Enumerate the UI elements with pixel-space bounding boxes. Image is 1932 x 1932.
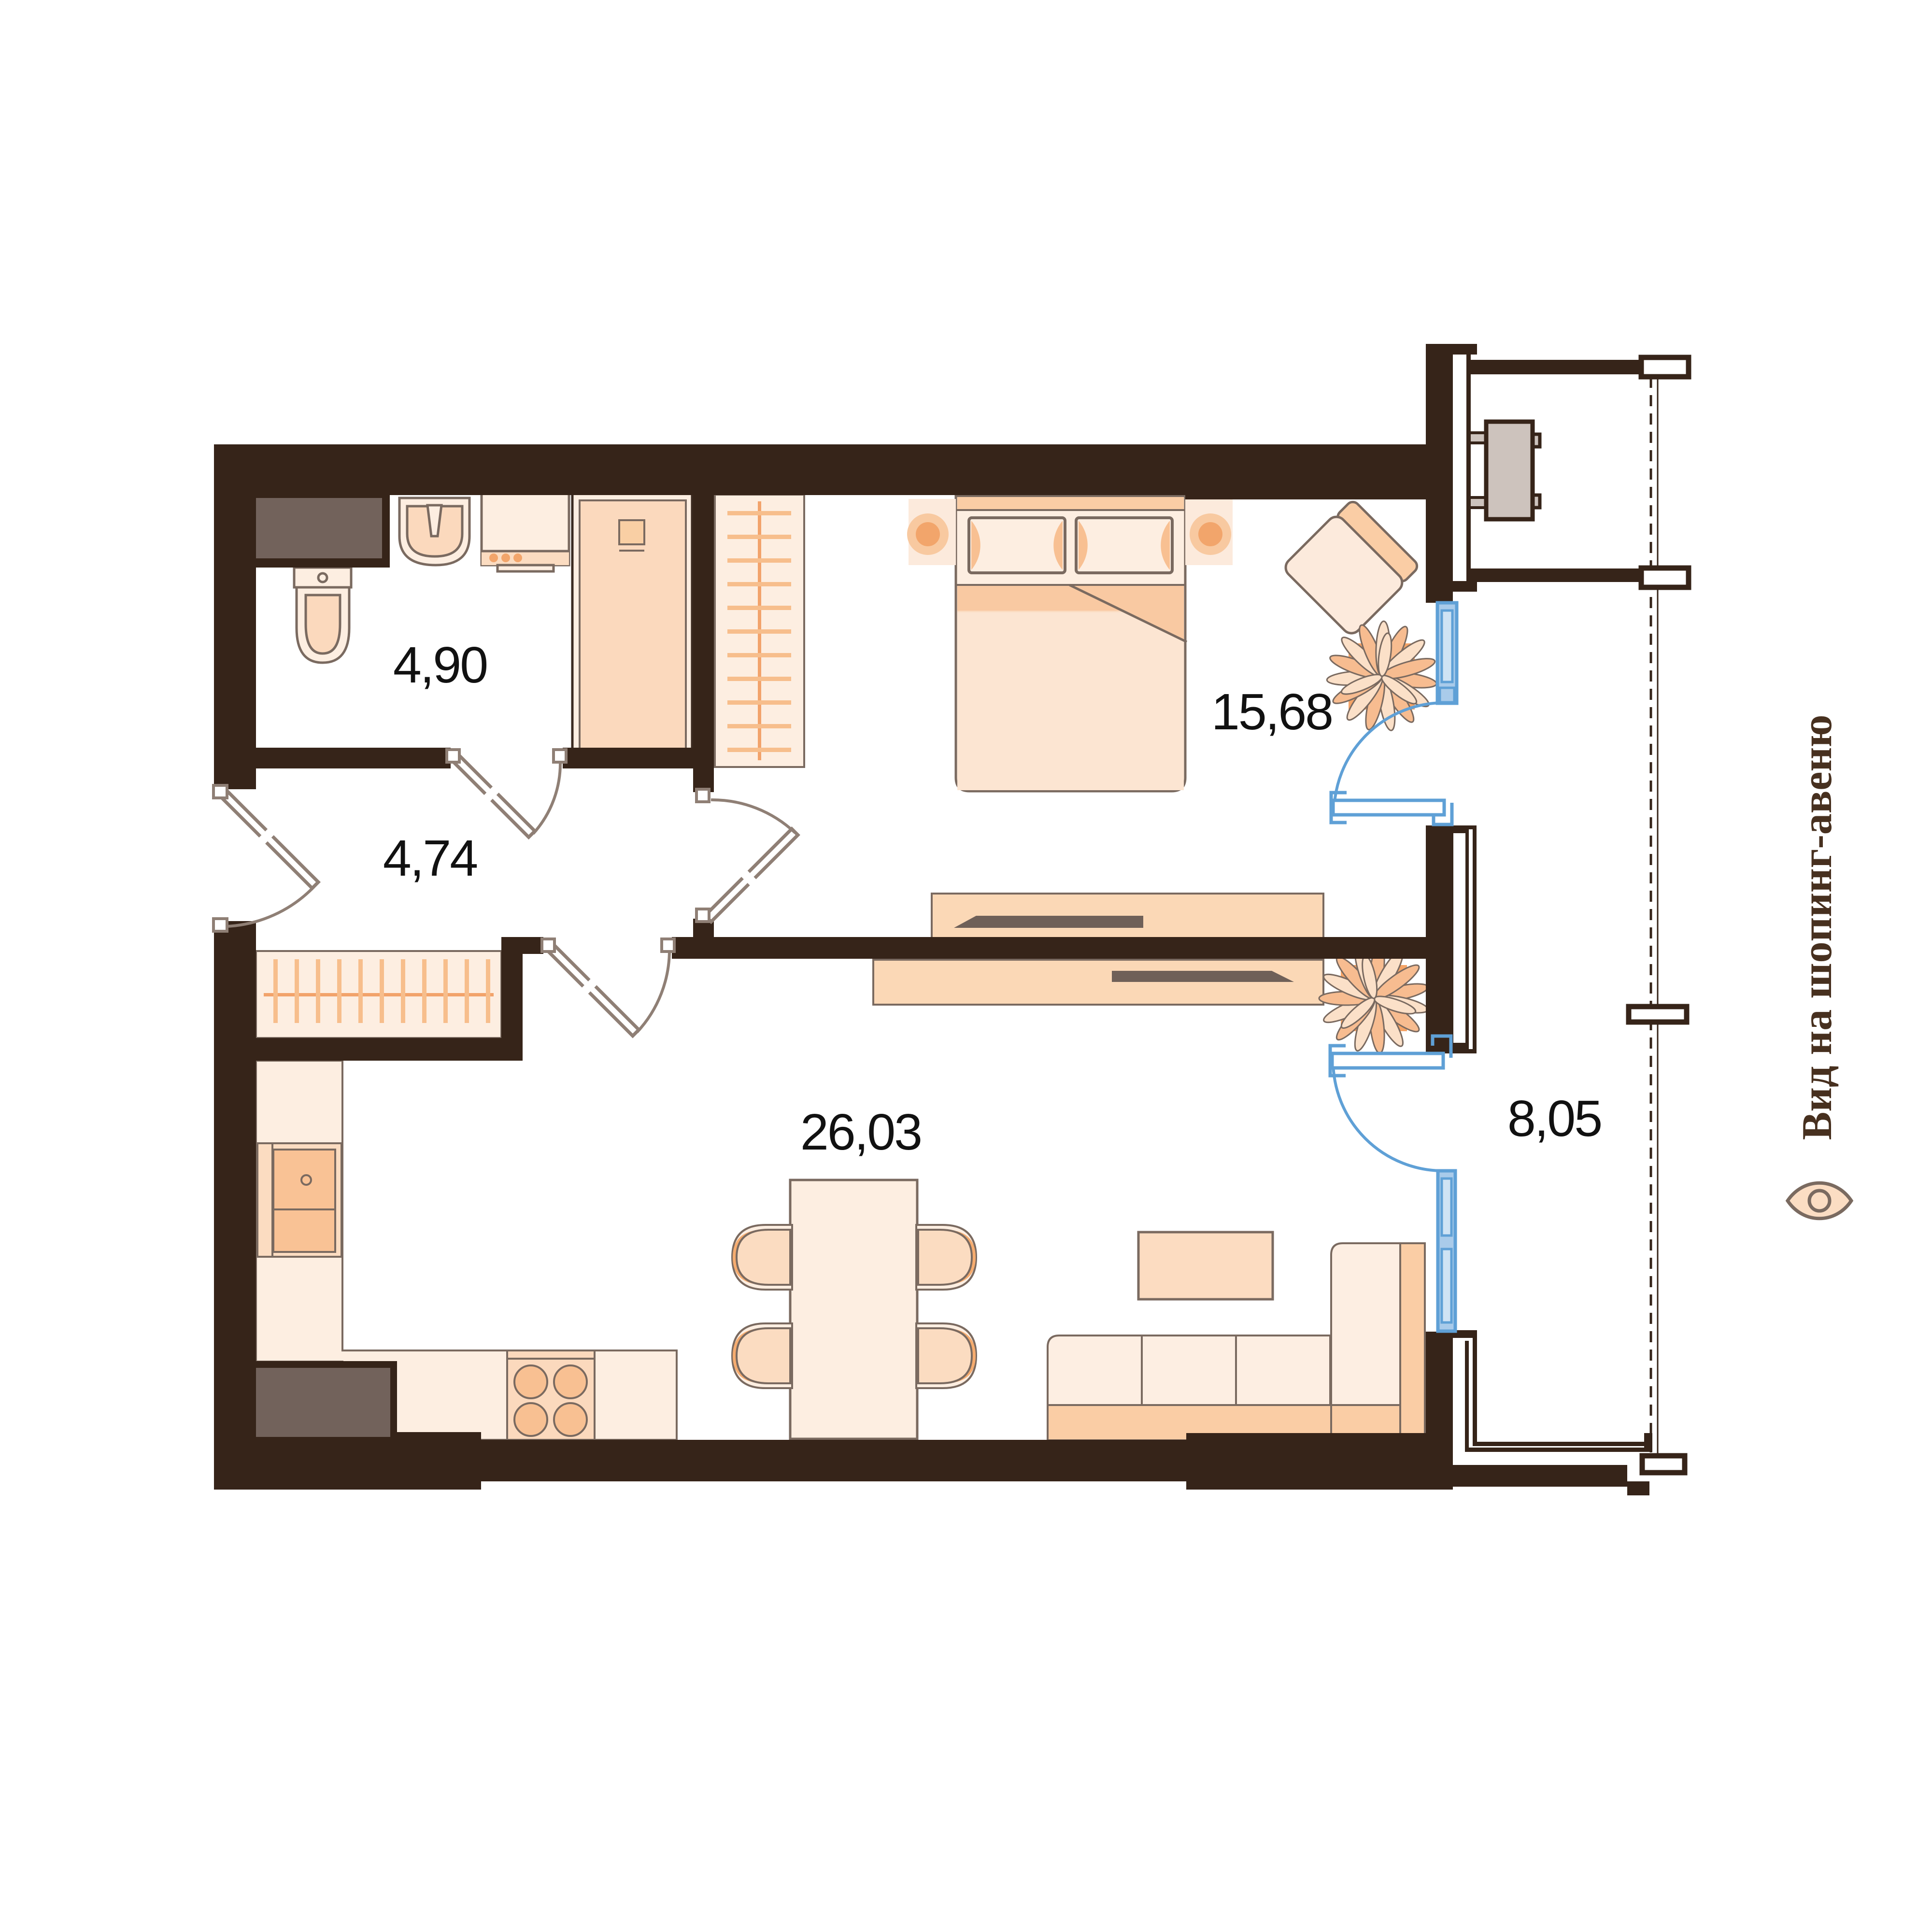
svg-text:4,90: 4,90 <box>393 637 487 694</box>
svg-text:8,05: 8,05 <box>1507 1090 1601 1147</box>
svg-text:4,74: 4,74 <box>383 830 477 887</box>
svg-text:26,03: 26,03 <box>800 1104 921 1161</box>
svg-text:Вид на шопинг-авеню: Вид на шопинг-авеню <box>1794 715 1841 1140</box>
svg-text:15,68: 15,68 <box>1211 683 1332 740</box>
